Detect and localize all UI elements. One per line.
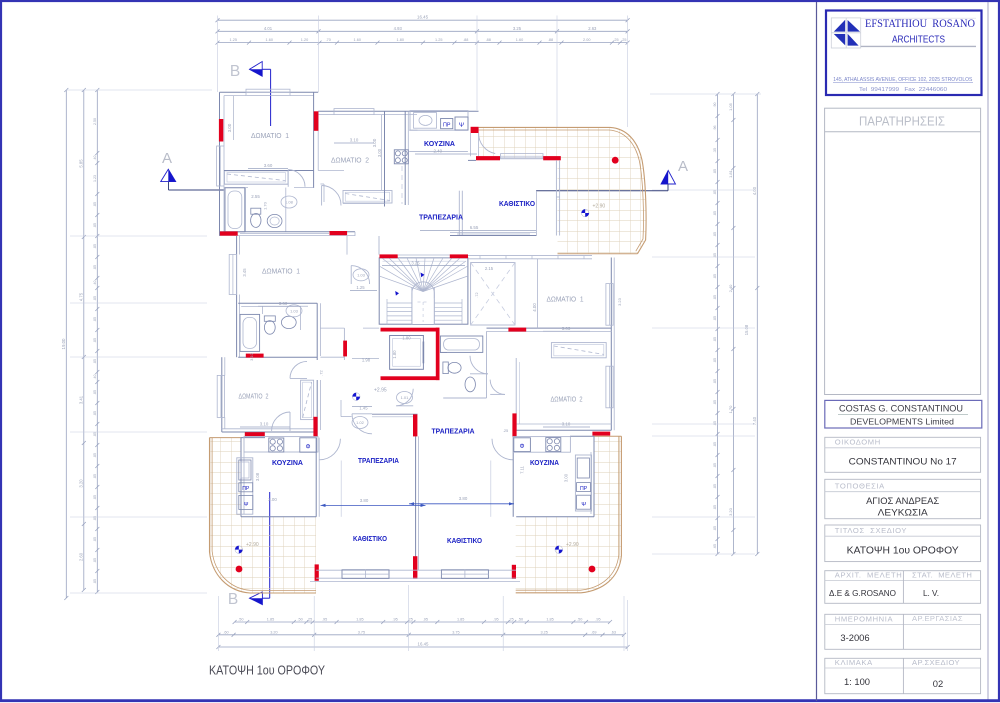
svg-text:ΠΡ: ΠΡ bbox=[242, 486, 250, 492]
svg-text:Ψ: Ψ bbox=[581, 502, 586, 508]
svg-text:COSTAS G. CONSTANTINOU: COSTAS G. CONSTANTINOU bbox=[839, 404, 963, 414]
svg-text:1.60: 1.60 bbox=[354, 38, 361, 42]
svg-text:.85: .85 bbox=[93, 432, 97, 437]
svg-text:ΠΡ: ΠΡ bbox=[443, 123, 451, 129]
svg-text:ΤΡΑΠΕΖΑΡΙΑ: ΤΡΑΠΕΖΑΡΙΑ bbox=[419, 213, 464, 222]
svg-text:ΚΑΤΟΨΗ 1ου ΟΡΟΦΟΥ: ΚΑΤΟΨΗ 1ου ΟΡΟΦΟΥ bbox=[847, 546, 959, 557]
svg-text:3.00: 3.00 bbox=[377, 148, 382, 157]
svg-text:145, ATHALASSIS AVENUE, OFFICE: 145, ATHALASSIS AVENUE, OFFICE 102, 2025… bbox=[833, 77, 972, 83]
svg-text:.25: .25 bbox=[621, 38, 626, 42]
svg-text:ΔΩΜΑΤΙΟ 1: ΔΩΜΑΤΙΟ 1 bbox=[547, 295, 584, 304]
svg-text:.35: .35 bbox=[713, 148, 717, 153]
svg-text:.85: .85 bbox=[93, 579, 97, 584]
svg-text:Φ: Φ bbox=[520, 444, 525, 450]
svg-text:ΤΡΑΠΕΖΑΡΙΑ: ΤΡΑΠΕΖΑΡΙΑ bbox=[358, 456, 400, 465]
svg-text:.40: .40 bbox=[93, 281, 97, 286]
svg-text:4.00: 4.00 bbox=[532, 303, 537, 312]
svg-text:5.85: 5.85 bbox=[78, 159, 83, 168]
svg-text:ΑΡ.ΕΡΓΑΣΙΑΣ: ΑΡ.ΕΡΓΑΣΙΑΣ bbox=[912, 614, 963, 623]
svg-text:.70: .70 bbox=[326, 38, 331, 42]
svg-text:ΚΟΥΖΙΝΑ: ΚΟΥΖΙΝΑ bbox=[424, 139, 456, 148]
svg-text:B: B bbox=[230, 63, 240, 80]
svg-text:.85: .85 bbox=[93, 296, 97, 301]
svg-text:.85: .85 bbox=[713, 211, 717, 216]
svg-text:.95: .95 bbox=[493, 618, 498, 622]
svg-text:1.80: 1.80 bbox=[402, 335, 411, 340]
svg-text:2.63: 2.63 bbox=[588, 26, 597, 31]
svg-text:.85: .85 bbox=[93, 390, 97, 395]
svg-text:ΤΟΠΟΘΕΣΙΑ: ΤΟΠΟΘΕΣΙΑ bbox=[835, 482, 885, 491]
svg-text:.85: .85 bbox=[713, 358, 717, 363]
svg-text:1.02: 1.02 bbox=[356, 420, 365, 425]
svg-text:A: A bbox=[678, 158, 688, 175]
svg-text:ARCHITECTS: ARCHITECTS bbox=[892, 34, 945, 45]
svg-text:.50: .50 bbox=[297, 618, 302, 622]
svg-text:3.41: 3.41 bbox=[78, 395, 83, 404]
svg-text:ΔΩΜΑΤΙΟ 1: ΔΩΜΑΤΙΟ 1 bbox=[262, 267, 300, 276]
svg-text:.95: .95 bbox=[393, 618, 398, 622]
svg-text:ΔΩΜΑΤΙΟ 2: ΔΩΜΑΤΙΟ 2 bbox=[331, 156, 369, 165]
svg-text:3.80: 3.80 bbox=[459, 496, 468, 501]
svg-text:ΚΑΤΟΨΗ 1ου ΟΡΟΦΟΥ: ΚΑΤΟΨΗ 1ου ΟΡΟΦΟΥ bbox=[209, 664, 326, 678]
svg-text:1: 100: 1: 100 bbox=[844, 676, 870, 687]
svg-text:ΔΩΜΑΤΙΟ 2: ΔΩΜΑΤΙΟ 2 bbox=[551, 395, 583, 404]
svg-text:.85: .85 bbox=[713, 421, 717, 426]
svg-text:.85: .85 bbox=[713, 526, 717, 531]
svg-text:3.10: 3.10 bbox=[562, 422, 571, 427]
svg-text:1.80: 1.80 bbox=[392, 350, 397, 359]
svg-text:4.75: 4.75 bbox=[78, 292, 83, 301]
svg-text:ΟΙΚΟΔΟΜΗ: ΟΙΚΟΔΟΜΗ bbox=[835, 438, 881, 447]
svg-text:.88: .88 bbox=[486, 38, 491, 42]
svg-text:3.00: 3.00 bbox=[564, 473, 569, 482]
svg-text:.65: .65 bbox=[713, 544, 717, 549]
svg-text:ΔΩΜΑΤΙΟ 1: ΔΩΜΑΤΙΟ 1 bbox=[251, 131, 289, 140]
svg-text:ΑΡ.ΣΧΕΔΙΟΥ: ΑΡ.ΣΧΕΔΙΟΥ bbox=[912, 658, 960, 667]
svg-text:.95: .95 bbox=[423, 618, 428, 622]
svg-text:1.03: 1.03 bbox=[357, 272, 366, 277]
svg-text:+2.95: +2.95 bbox=[374, 388, 387, 394]
svg-text:.25: .25 bbox=[508, 618, 513, 622]
svg-text:3.00: 3.00 bbox=[372, 138, 377, 147]
svg-text:+2.90: +2.90 bbox=[593, 204, 606, 210]
svg-text:2.00: 2.00 bbox=[583, 38, 590, 42]
svg-text:.85: .85 bbox=[93, 317, 97, 322]
svg-text:.88: .88 bbox=[548, 38, 553, 42]
svg-text:.85: .85 bbox=[713, 274, 717, 279]
svg-text:16.45: 16.45 bbox=[418, 642, 430, 647]
svg-text:1.20: 1.20 bbox=[301, 38, 308, 42]
svg-text:6.55: 6.55 bbox=[470, 225, 479, 230]
svg-text:.90: .90 bbox=[713, 103, 717, 108]
svg-text:1.85: 1.85 bbox=[356, 618, 363, 622]
svg-text:ΤΡΑΠΕΖΑΡΙΑ: ΤΡΑΠΕΖΑΡΙΑ bbox=[432, 427, 476, 436]
svg-text:+2.90: +2.90 bbox=[246, 542, 259, 548]
svg-text:DEVELOPMENTS Limited: DEVELOPMENTS Limited bbox=[850, 417, 954, 427]
svg-text:.72: .72 bbox=[475, 292, 479, 297]
svg-text:.85: .85 bbox=[713, 169, 717, 174]
svg-text:ΔΩΜΑΤΙΟ 2: ΔΩΜΑΤΙΟ 2 bbox=[239, 392, 269, 401]
svg-text:1.25: 1.25 bbox=[356, 285, 365, 290]
svg-text:.40: .40 bbox=[93, 375, 97, 380]
svg-text:.85: .85 bbox=[713, 463, 717, 468]
svg-text:.85: .85 bbox=[713, 505, 717, 510]
svg-text:1.25: 1.25 bbox=[435, 38, 442, 42]
svg-text:7.11: 7.11 bbox=[520, 465, 525, 474]
svg-text:.85: .85 bbox=[93, 359, 97, 364]
svg-text:ΠΡ: ΠΡ bbox=[580, 486, 588, 492]
svg-text:3.25: 3.25 bbox=[513, 26, 522, 31]
svg-text:.85: .85 bbox=[93, 223, 97, 228]
svg-text:2.60: 2.60 bbox=[78, 552, 83, 561]
svg-text:3.20: 3.20 bbox=[78, 479, 83, 488]
svg-text:.50: .50 bbox=[577, 618, 582, 622]
svg-text:1.85: 1.85 bbox=[267, 618, 274, 622]
svg-text:1.81: 1.81 bbox=[728, 169, 733, 178]
svg-text:1.01: 1.01 bbox=[401, 395, 410, 400]
svg-text:1.08: 1.08 bbox=[285, 200, 294, 205]
svg-text:2.50: 2.50 bbox=[93, 118, 97, 125]
svg-text:.85: .85 bbox=[713, 442, 717, 447]
svg-text:ΚΑΘΙΣΤΙΚΟ: ΚΑΘΙΣΤΙΚΟ bbox=[499, 199, 535, 208]
svg-text:3.00: 3.00 bbox=[268, 497, 277, 502]
svg-text:Δ.E & G.ROSANO: Δ.E & G.ROSANO bbox=[829, 589, 896, 598]
svg-text:CONSTANTINOU No 17: CONSTANTINOU No 17 bbox=[849, 456, 957, 467]
svg-text:.85: .85 bbox=[713, 190, 717, 195]
svg-text:ΑΓΙΟΣ ΑΝΔΡΕΑΣ: ΑΓΙΟΣ ΑΝΔΡΕΑΣ bbox=[866, 495, 939, 506]
svg-text:15.08: 15.08 bbox=[744, 324, 749, 335]
svg-text:.85: .85 bbox=[713, 400, 717, 405]
svg-text:.95: .95 bbox=[322, 618, 327, 622]
svg-text:1.85: 1.85 bbox=[457, 618, 464, 622]
svg-text:2.40: 2.40 bbox=[434, 149, 443, 154]
svg-text:B: B bbox=[228, 591, 238, 608]
svg-text:3.25: 3.25 bbox=[411, 261, 420, 266]
svg-text:2.55: 2.55 bbox=[251, 194, 260, 199]
svg-text:.85: .85 bbox=[93, 202, 97, 207]
svg-text:.60: .60 bbox=[223, 630, 228, 634]
svg-text:3-2006: 3-2006 bbox=[840, 632, 869, 643]
svg-text:Tel 99417999 Fax 22446060: Tel 99417999 Fax 22446060 bbox=[859, 87, 947, 93]
svg-text:.85: .85 bbox=[713, 295, 717, 300]
svg-text:ΚΟΥΖΙΝΑ: ΚΟΥΖΙΝΑ bbox=[272, 458, 304, 467]
svg-text:2.40: 2.40 bbox=[728, 284, 733, 293]
svg-text:.85: .85 bbox=[713, 337, 717, 342]
svg-text:Ψ: Ψ bbox=[459, 123, 464, 129]
svg-text:ΚΑΘΙΣΤΙΚΟ: ΚΑΘΙΣΤΙΚΟ bbox=[447, 536, 482, 545]
svg-text:.72: .72 bbox=[319, 369, 324, 375]
svg-text:3.75: 3.75 bbox=[358, 630, 365, 634]
svg-text:ΗΜΕΡΟΜΗΝΙΑ: ΗΜΕΡΟΜΗΝΙΑ bbox=[835, 614, 894, 623]
svg-text:.88: .88 bbox=[463, 38, 468, 42]
svg-text:ΚΛΙΜΑΚΑ: ΚΛΙΜΑΚΑ bbox=[835, 658, 873, 667]
svg-text:3.10: 3.10 bbox=[249, 352, 254, 361]
svg-text:3.00: 3.00 bbox=[227, 123, 232, 132]
svg-text:ΤΙΤΛΟΣ ΣΧΕΔΙΟΥ: ΤΙΤΛΟΣ ΣΧΕΔΙΟΥ bbox=[835, 526, 907, 535]
svg-text:EFSTATHIOU ROSANO: EFSTATHIOU ROSANO bbox=[865, 17, 975, 30]
svg-text:ΚΟΥΖΙΝΑ: ΚΟΥΖΙΝΑ bbox=[530, 458, 560, 467]
svg-text:3.20: 3.20 bbox=[270, 630, 277, 634]
svg-text:02: 02 bbox=[933, 678, 943, 689]
svg-text:A: A bbox=[162, 150, 172, 167]
svg-text:.85: .85 bbox=[93, 558, 97, 563]
svg-text:ΛΕΥΚΩΣΙΑ: ΛΕΥΚΩΣΙΑ bbox=[878, 506, 929, 517]
svg-text:1.80: 1.80 bbox=[397, 38, 404, 42]
svg-text:.69: .69 bbox=[591, 630, 596, 634]
svg-text:.25: .25 bbox=[613, 38, 618, 42]
svg-text:.85: .85 bbox=[93, 411, 97, 416]
svg-text:.85: .85 bbox=[713, 232, 717, 237]
svg-text:3.25: 3.25 bbox=[541, 630, 548, 634]
svg-text:3.45: 3.45 bbox=[242, 268, 247, 277]
svg-text:4.00: 4.00 bbox=[752, 186, 757, 195]
svg-text:.50: .50 bbox=[518, 618, 523, 622]
svg-text:3.08: 3.08 bbox=[255, 472, 260, 481]
svg-text:ΑΡΧΙΤ. ΜΕΛΕΤΗ: ΑΡΧΙΤ. ΜΕΛΕΤΗ bbox=[835, 570, 903, 579]
svg-text:1.23: 1.23 bbox=[93, 175, 97, 182]
svg-text:L. V.: L. V. bbox=[923, 589, 939, 598]
svg-text:3.20: 3.20 bbox=[728, 507, 733, 516]
svg-text:1.25: 1.25 bbox=[230, 38, 237, 42]
svg-text:ΠΑΡΑΤΗΡΗΣΕΙΣ: ΠΑΡΑΤΗΡΗΣΕΙΣ bbox=[859, 115, 945, 129]
svg-text:Ψ: Ψ bbox=[244, 502, 249, 508]
svg-text:+2.90: +2.90 bbox=[566, 542, 579, 548]
svg-text:Φ: Φ bbox=[306, 444, 311, 450]
svg-text:ΚΑΘΙΣΤΙΚΟ: ΚΑΘΙΣΤΙΚΟ bbox=[353, 534, 387, 543]
svg-text:16.45: 16.45 bbox=[417, 15, 429, 20]
svg-text:3.10: 3.10 bbox=[260, 422, 269, 427]
svg-text:1.03: 1.03 bbox=[290, 308, 299, 313]
svg-text:3.60: 3.60 bbox=[279, 301, 288, 306]
svg-text:1.70: 1.70 bbox=[263, 201, 268, 210]
svg-text:3.60: 3.60 bbox=[264, 163, 273, 168]
svg-text:.85: .85 bbox=[93, 265, 97, 270]
svg-text:.85: .85 bbox=[93, 453, 97, 458]
svg-text:.85: .85 bbox=[713, 379, 717, 384]
svg-text:ΣΤΑΤ. ΜΕΛΕΤΗ: ΣΤΑΤ. ΜΕΛΕΤΗ bbox=[912, 570, 972, 579]
svg-text:1.70: 1.70 bbox=[728, 405, 733, 414]
svg-text:1.60: 1.60 bbox=[266, 38, 273, 42]
svg-text:1.85: 1.85 bbox=[546, 618, 553, 622]
svg-text:.50: .50 bbox=[238, 618, 243, 622]
svg-text:3.23: 3.23 bbox=[617, 297, 622, 306]
svg-text:.85: .85 bbox=[93, 338, 97, 343]
svg-text:1.60: 1.60 bbox=[516, 38, 523, 42]
svg-text:.85: .85 bbox=[93, 537, 97, 542]
svg-text:2.15: 2.15 bbox=[485, 266, 494, 271]
svg-text:1.05: 1.05 bbox=[728, 102, 733, 111]
svg-text:4.01: 4.01 bbox=[264, 26, 273, 31]
svg-text:.85: .85 bbox=[713, 316, 717, 321]
svg-text:19.00: 19.00 bbox=[61, 338, 66, 350]
svg-text:.25: .25 bbox=[307, 618, 312, 622]
svg-text:.25: .25 bbox=[503, 428, 509, 433]
svg-text:.85: .85 bbox=[713, 484, 717, 489]
svg-text:.96: .96 bbox=[713, 126, 717, 131]
svg-text:.85: .85 bbox=[93, 244, 97, 249]
svg-text:.85: .85 bbox=[93, 495, 97, 500]
svg-text:.40: .40 bbox=[93, 156, 97, 161]
svg-text:3.75: 3.75 bbox=[452, 630, 459, 634]
svg-text:3.80: 3.80 bbox=[360, 498, 369, 503]
svg-text:4.93: 4.93 bbox=[394, 26, 403, 31]
svg-text:3.10: 3.10 bbox=[350, 138, 359, 143]
svg-text:3.03: 3.03 bbox=[562, 326, 571, 331]
svg-text:.85: .85 bbox=[93, 474, 97, 479]
svg-text:.95: .95 bbox=[595, 618, 600, 622]
svg-text:.63: .63 bbox=[611, 630, 616, 634]
